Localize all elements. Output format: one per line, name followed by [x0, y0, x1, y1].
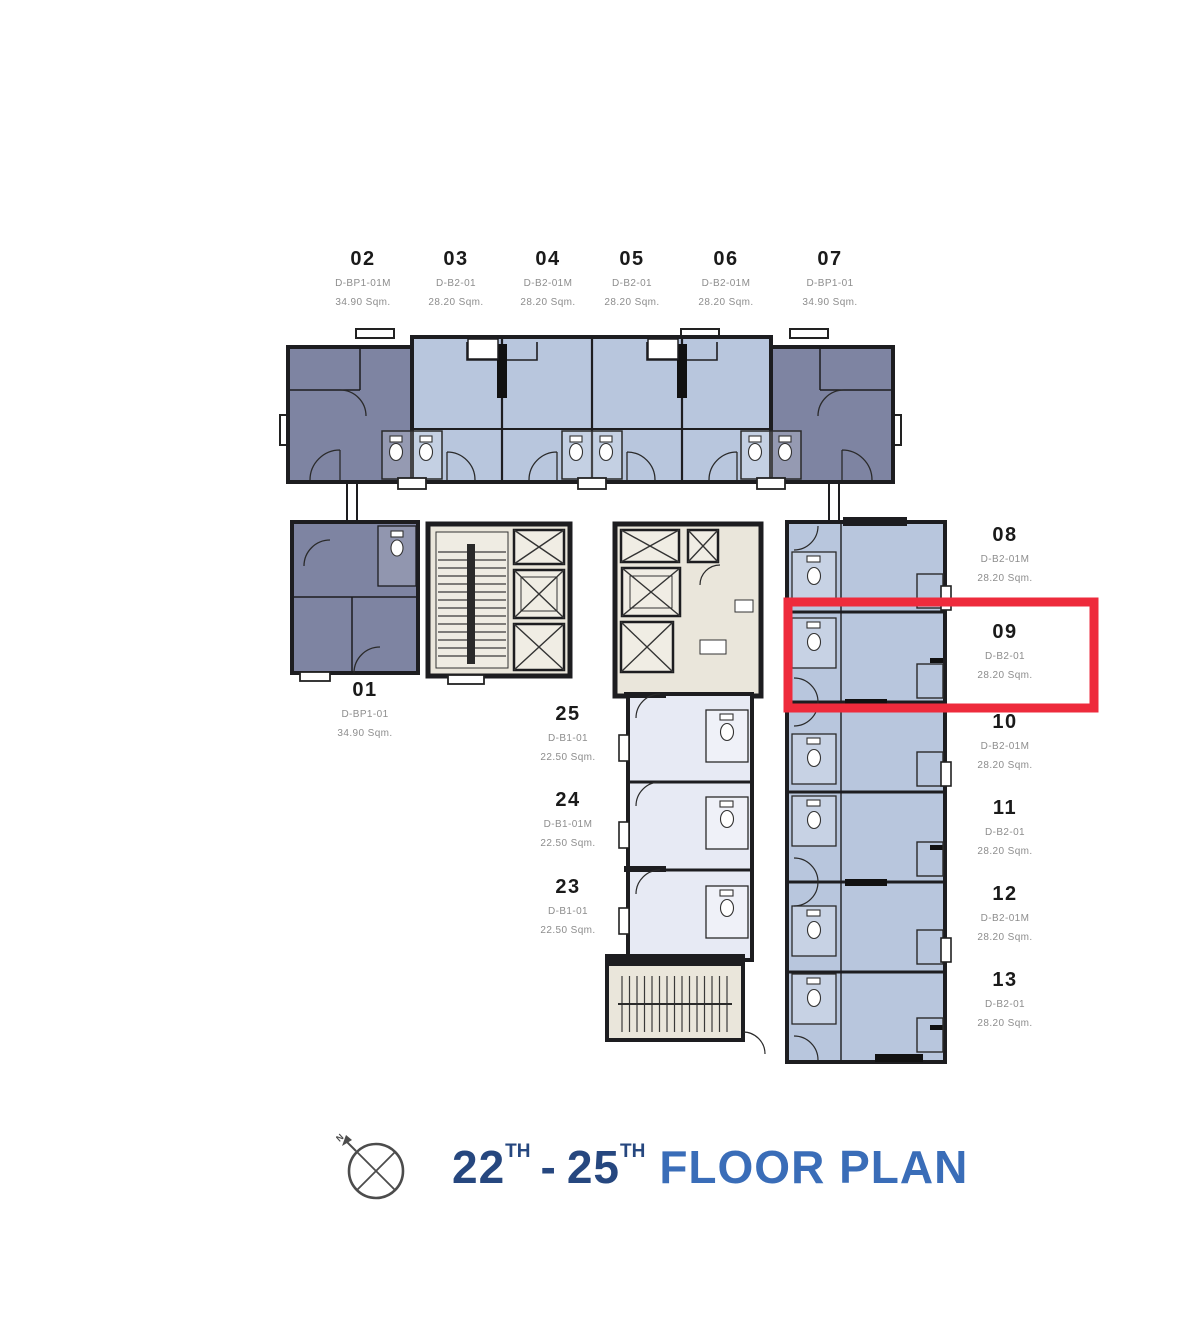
unit-type: D-B1-01 — [540, 902, 595, 921]
title-floor-end-ordinal: TH — [620, 1141, 645, 1162]
unit-number: 11 — [977, 797, 1032, 820]
unit-number: 13 — [977, 969, 1032, 992]
unit-type: D-B2-01M — [977, 550, 1032, 569]
unit-label-10: 10 D-B2-01M 28.20 Sqm. — [977, 711, 1032, 775]
bottom-stair-block — [607, 956, 765, 1054]
floor-plan-title: 22TH-25THFLOOR PLAN — [452, 1144, 968, 1190]
unit-number: 01 — [337, 679, 392, 702]
compass-icon: N — [336, 1130, 410, 1204]
title-floor-end: 25 — [567, 1141, 620, 1193]
unit-label-04: 04 D-B2-01M 28.20 Sqm. — [520, 248, 575, 312]
unit-area: 34.90 Sqm. — [337, 724, 392, 743]
title-separator: - — [541, 1141, 557, 1193]
unit-type: D-B2-01M — [698, 274, 753, 293]
unit-type: D-BP1-01 — [802, 274, 857, 293]
unit-number: 12 — [977, 883, 1032, 906]
unit-label-05: 05 D-B2-01 28.20 Sqm. — [604, 248, 659, 312]
unit-area: 34.90 Sqm. — [335, 293, 391, 312]
unit-number: 08 — [977, 524, 1032, 547]
unit-type: D-B1-01 — [540, 729, 595, 748]
unit-number: 09 — [977, 621, 1032, 644]
unit-number: 24 — [540, 789, 595, 812]
unit-number: 07 — [802, 248, 857, 271]
unit-label-11: 11 D-B2-01 28.20 Sqm. — [977, 797, 1032, 861]
unit-area: 34.90 Sqm. — [802, 293, 857, 312]
unit-label-13: 13 D-B2-01 28.20 Sqm. — [977, 969, 1032, 1033]
unit-number: 23 — [540, 876, 595, 899]
unit-number: 06 — [698, 248, 753, 271]
unit-number: 03 — [428, 248, 483, 271]
unit-area: 28.20 Sqm. — [977, 928, 1032, 947]
unit-type: D-B1-01M — [540, 815, 595, 834]
stairwell-icon — [436, 532, 508, 668]
unit-area: 22.50 Sqm. — [540, 834, 595, 853]
unit-label-24: 24 D-B1-01M 22.50 Sqm. — [540, 789, 595, 853]
core-elevator-lobby — [615, 524, 761, 696]
unit-type: D-B2-01 — [977, 647, 1032, 666]
unit-type: D-B2-01 — [428, 274, 483, 293]
unit-type: D-B2-01 — [977, 995, 1032, 1014]
unit-area: 28.20 Sqm. — [428, 293, 483, 312]
unit-area: 28.20 Sqm. — [977, 569, 1032, 588]
floor-plan-title-row: N 22TH-25THFLOOR PLAN — [336, 1130, 968, 1204]
unit-area: 22.50 Sqm. — [540, 748, 595, 767]
floor-plan-page: 02 D-BP1-01M 34.90 Sqm. 03 D-B2-01 28.20… — [0, 0, 1200, 1332]
unit-type: D-B2-01M — [977, 909, 1032, 928]
unit-number: 10 — [977, 711, 1032, 734]
unit-label-25: 25 D-B1-01 22.50 Sqm. — [540, 703, 595, 767]
unit-label-09: 09 D-B2-01 28.20 Sqm. — [977, 621, 1032, 685]
unit-number: 04 — [520, 248, 575, 271]
title-label: FLOOR PLAN — [659, 1141, 968, 1193]
unit-area: 22.50 Sqm. — [540, 921, 595, 940]
unit-area: 28.20 Sqm. — [977, 666, 1032, 685]
unit-number: 25 — [540, 703, 595, 726]
unit-area: 28.20 Sqm. — [698, 293, 753, 312]
top-building-block — [280, 329, 901, 489]
unit-label-02: 02 D-BP1-01M 34.90 Sqm. — [335, 248, 391, 312]
unit-01-block — [292, 522, 418, 681]
unit-label-07: 07 D-BP1-01 34.90 Sqm. — [802, 248, 857, 312]
unit-type: D-B2-01M — [977, 737, 1032, 756]
title-floor-start-ordinal: TH — [505, 1141, 530, 1162]
unit-area: 28.20 Sqm. — [977, 756, 1032, 775]
unit-label-01: 01 D-BP1-01 34.90 Sqm. — [337, 679, 392, 743]
unit-type: D-BP1-01M — [335, 274, 391, 293]
unit-area: 28.20 Sqm. — [604, 293, 659, 312]
unit-number: 05 — [604, 248, 659, 271]
unit-area: 28.20 Sqm. — [520, 293, 575, 312]
middle-units-column — [619, 692, 752, 960]
title-floor-start: 22 — [452, 1141, 505, 1193]
unit-area: 28.20 Sqm. — [977, 842, 1032, 861]
unit-type: D-BP1-01 — [337, 705, 392, 724]
core-stair-elevators — [428, 524, 570, 684]
unit-label-08: 08 D-B2-01M 28.20 Sqm. — [977, 524, 1032, 588]
unit-type: D-B2-01 — [604, 274, 659, 293]
unit-label-03: 03 D-B2-01 28.20 Sqm. — [428, 248, 483, 312]
unit-type: D-B2-01M — [520, 274, 575, 293]
unit-label-06: 06 D-B2-01M 28.20 Sqm. — [698, 248, 753, 312]
unit-number: 02 — [335, 248, 391, 271]
unit-area: 28.20 Sqm. — [977, 1014, 1032, 1033]
unit-label-23: 23 D-B1-01 22.50 Sqm. — [540, 876, 595, 940]
unit-type: D-B2-01 — [977, 823, 1032, 842]
unit-label-12: 12 D-B2-01M 28.20 Sqm. — [977, 883, 1032, 947]
